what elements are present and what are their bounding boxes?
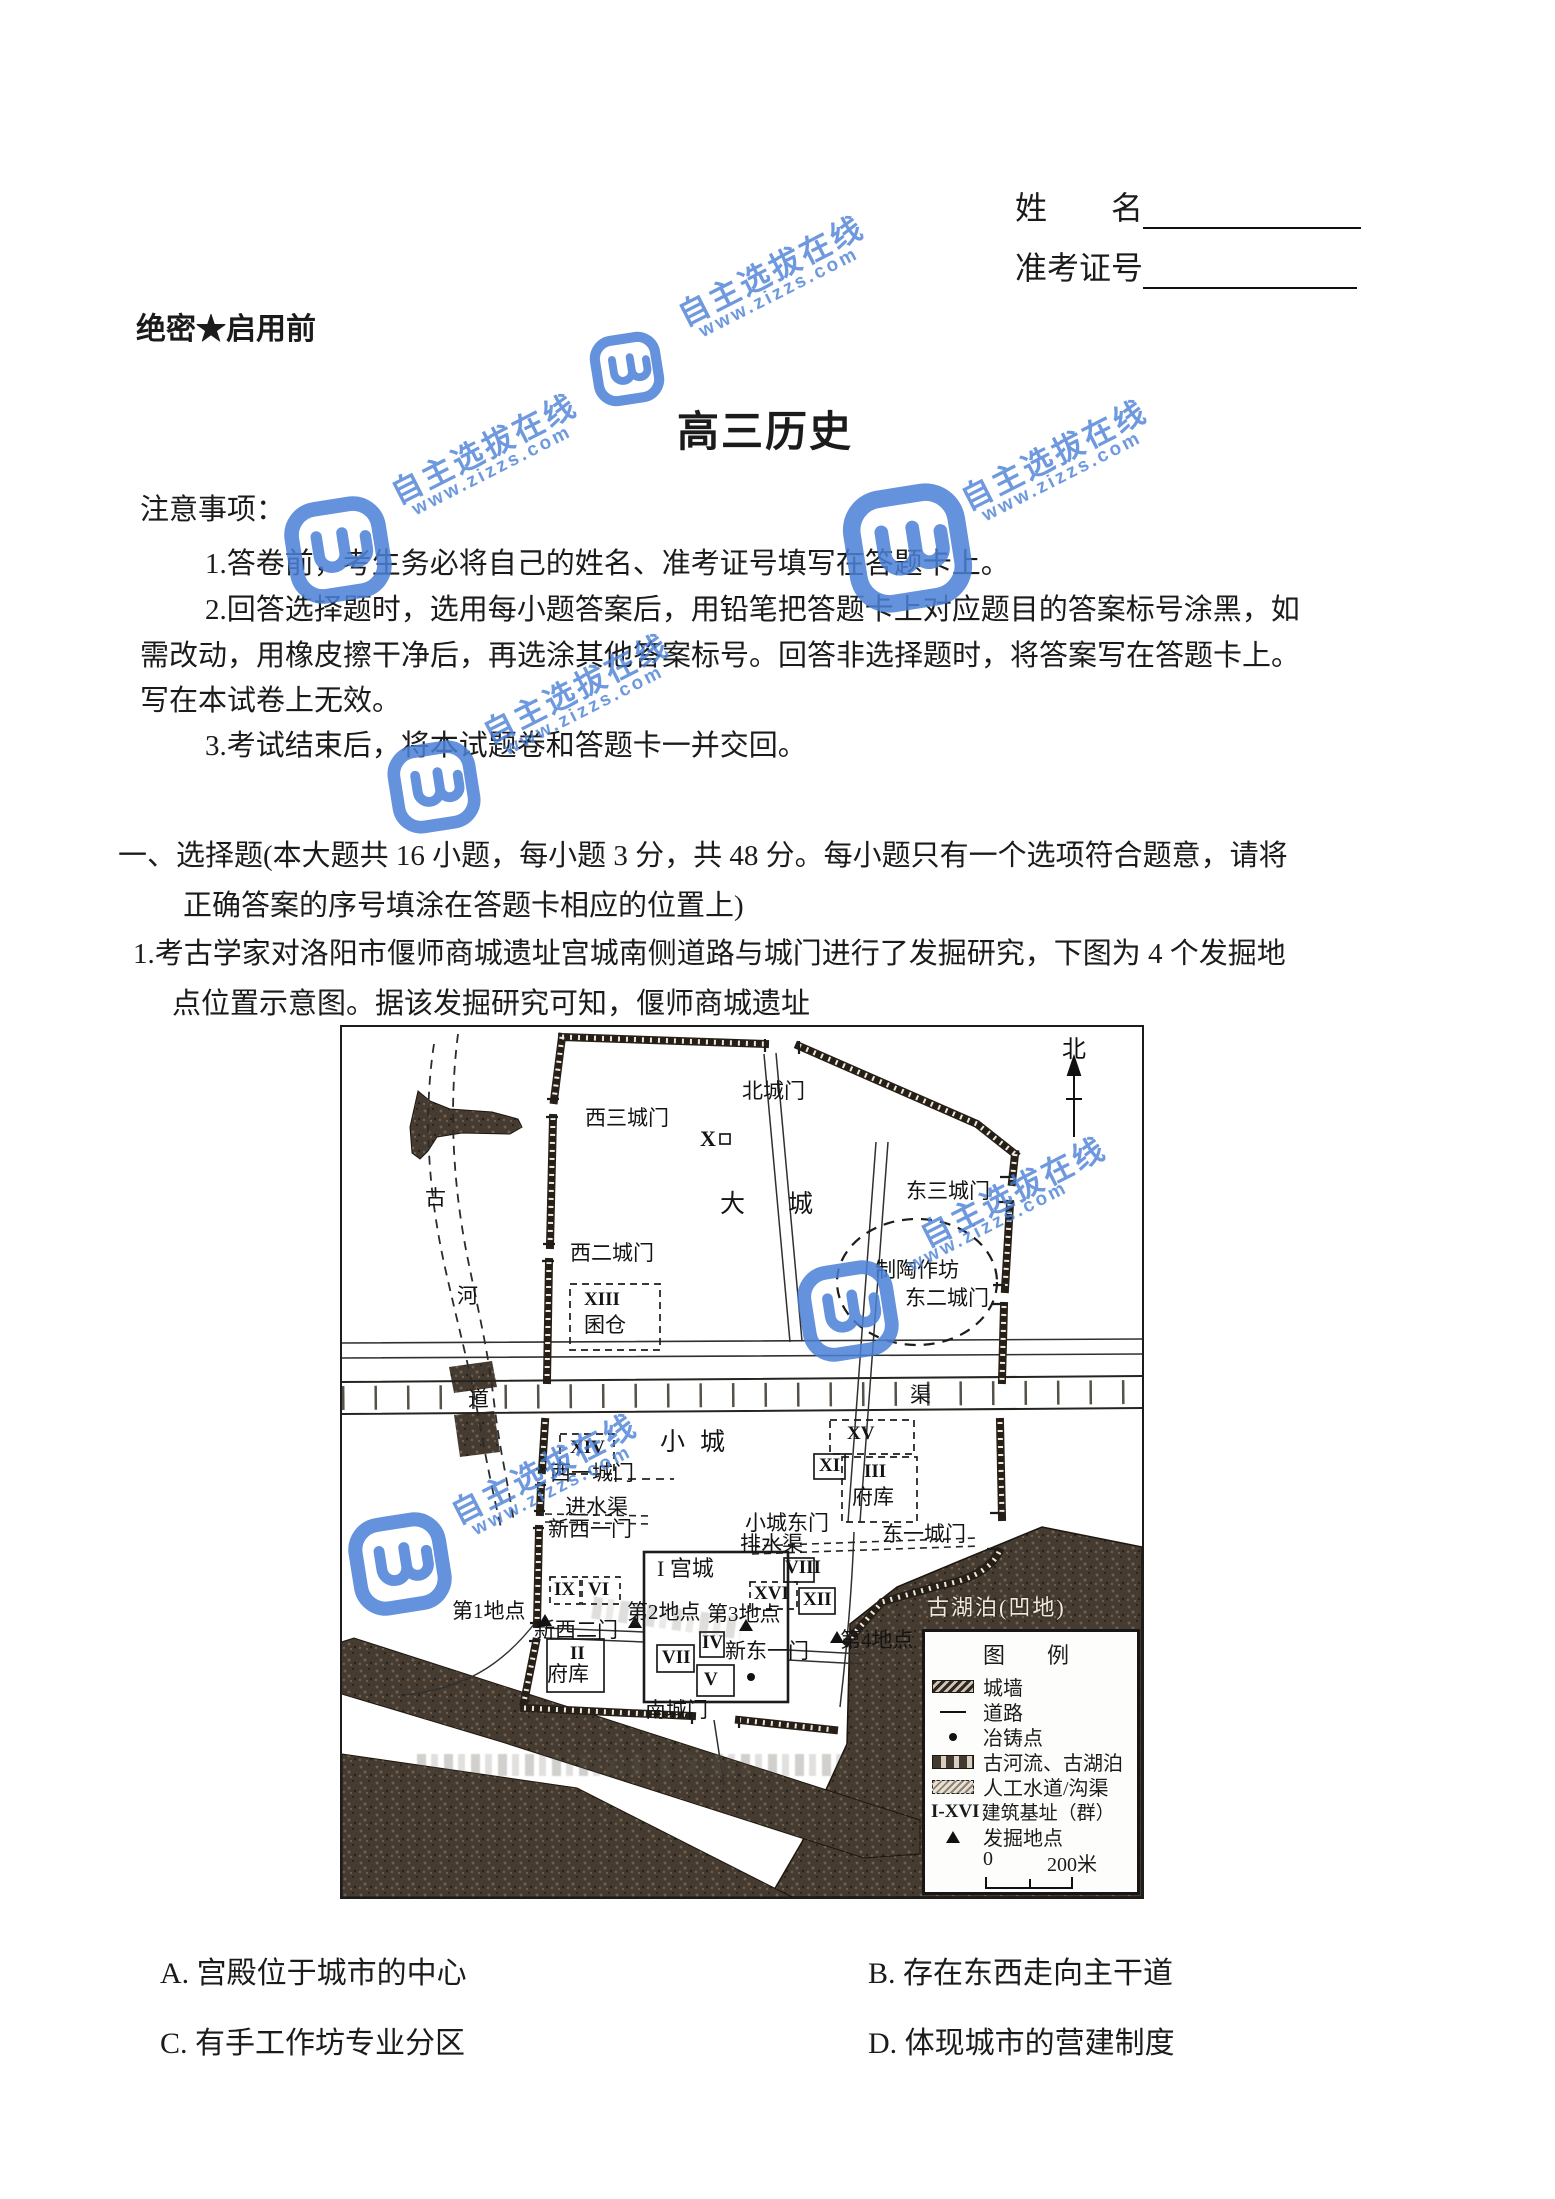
canal-lines	[342, 1376, 1142, 1414]
east-west-road	[342, 1339, 1142, 1358]
exam-paper-page: 姓 名 准考证号 绝密★启用前 高三历史 注意事项： 1.答卷前，考生务必将自己…	[0, 0, 1555, 2199]
label-water-inlet: 进水渠	[565, 1496, 628, 1518]
label-canal: 渠	[910, 1384, 931, 1406]
notes-heading: 注意事项：	[140, 486, 285, 528]
legend-title: 图 例	[931, 1638, 1131, 1670]
label-dacheng-a: 大	[720, 1192, 746, 1218]
showthrough-noise-strip-1	[417, 1754, 847, 1776]
name-blank-line	[1143, 197, 1361, 229]
legend-row-dig: 发掘地点	[931, 1824, 1131, 1849]
canal-swatch-icon	[931, 1780, 975, 1794]
exam-id-field-row: 准考证号	[1015, 243, 1357, 289]
legend-roman-range: I-XVI	[931, 1801, 980, 1823]
road-swatch-icon	[931, 1711, 975, 1713]
label-xiaocheng-a: 小	[660, 1430, 686, 1456]
label-iii: III	[864, 1462, 886, 1482]
label-gu: 古	[425, 1187, 446, 1209]
name-field-row: 姓 名	[1015, 183, 1361, 229]
legend-row-foundation: I-XVI 建筑基址（群）	[931, 1799, 1131, 1824]
option-c: C. 有手工作坊专业分区	[160, 2018, 465, 2062]
label-west-gate-2: 西二城门	[570, 1242, 654, 1264]
notes-item2-line3: 写在本试卷上无效。	[140, 677, 401, 719]
casting-point-dot	[747, 1673, 755, 1681]
label-small-city-east-gate: 小城东门	[745, 1512, 829, 1534]
legend-row-wall: 城墙	[931, 1674, 1131, 1699]
label-he: 河	[457, 1285, 478, 1307]
legend-row-cast: 冶铸点	[931, 1724, 1131, 1749]
channel-cross-blob-2	[454, 1411, 500, 1457]
zizzs-logo-icon	[343, 1506, 458, 1622]
label-xii: XII	[803, 1590, 832, 1610]
label-new-east-gate-1: 新东一门	[725, 1640, 809, 1662]
label-xv: XV	[847, 1424, 874, 1444]
label-vi: VI	[588, 1580, 609, 1600]
option-d: D. 体现城市的营建制度	[868, 2018, 1175, 2062]
dig-site-swatch-icon	[931, 1831, 975, 1843]
label-dao: 道	[468, 1388, 489, 1410]
archaeological-site-map: 北 北城门 西三城门 X 大 城 东三城门 制陶作坊 东二城门 西二城门 XII…	[340, 1025, 1144, 1899]
label-west-gate-3: 西三城门	[585, 1107, 669, 1129]
scale-bar	[985, 1877, 1073, 1889]
label-dacheng-b: 城	[788, 1192, 814, 1218]
river-hook-blob	[410, 1091, 522, 1159]
label-xvi: XVI	[754, 1584, 789, 1604]
label-ix: IX	[554, 1580, 575, 1600]
label-viii: VIII	[785, 1558, 821, 1578]
canal-ticks	[342, 1392, 1142, 1398]
secrecy-label: 绝密★启用前	[136, 304, 316, 348]
label-north-gate: 北城门	[742, 1080, 805, 1102]
legend-dig-label: 发掘地点	[983, 1822, 1063, 1851]
river-swatch-icon	[931, 1755, 975, 1769]
label-xiii: XIII	[584, 1290, 620, 1310]
option-a: A. 宫殿位于城市的中心	[160, 1948, 467, 1992]
zizzs-logo-icon	[791, 1255, 905, 1367]
label-dig-site-1: 第1地点	[452, 1600, 526, 1622]
legend-canal-label: 人工水道/沟渠	[983, 1772, 1109, 1801]
label-xiaocheng-b: 城	[700, 1430, 726, 1456]
label-treasury-east: 府库	[852, 1486, 894, 1508]
question1-line2: 点位置示意图。据该发掘研究可知，偃师商城遗址	[172, 980, 810, 1022]
label-new-west-gate-2: 新西二门	[534, 1619, 618, 1641]
exam-id-blank-line	[1143, 257, 1357, 289]
section-header-line1: 一、选择题(本大题共 16 小题，每小题 3 分，共 48 分。每小题只有一个选…	[118, 832, 1288, 874]
label-palace-city: I 宫城	[657, 1557, 714, 1580]
wall-swatch-icon	[931, 1680, 975, 1693]
zizzs-logo-icon	[586, 328, 668, 410]
label-iv: IV	[702, 1633, 723, 1653]
label-drainage: 排水渠	[740, 1533, 803, 1555]
label-granary: 囷仓	[584, 1314, 626, 1336]
option-b: B. 存在东西走向主干道	[868, 1948, 1173, 1992]
question1-line1: 1.考古学家对洛阳市偃师商城遗址宫城南侧道路与城门进行了发掘研究，下图为 4 个…	[133, 930, 1286, 972]
section-header-line2: 正确答案的序号填涂在答题卡相应的位置上)	[183, 882, 744, 924]
page-title: 高三历史	[0, 398, 1530, 459]
label-x: X	[700, 1127, 716, 1150]
scale-zero: 0	[983, 1848, 993, 1871]
label-ii: II	[570, 1644, 585, 1664]
label-vii: VII	[662, 1648, 691, 1668]
zizzs-logo-icon	[836, 474, 980, 622]
legend-row-canal: 人工水道/沟渠	[931, 1774, 1131, 1799]
name-label: 姓 名	[1015, 190, 1143, 226]
label-dig-site-4: 第4地点	[840, 1629, 914, 1651]
label-east-gate-1: 东一城门	[882, 1523, 966, 1545]
zizzs-logo-icon	[276, 490, 401, 610]
notes-item2-line2: 需改动，用橡皮擦干净后，再选涂其他答案标号。回答非选择题时，将答案写在答题卡上。	[140, 632, 1300, 674]
zizzs-logo-icon	[382, 735, 487, 838]
label-dig-site-2: 第2地点	[627, 1601, 701, 1623]
label-south-gate: 南城门	[645, 1699, 708, 1721]
label-ancient-lake: 古湖泊(凹地)	[927, 1596, 1066, 1619]
map-legend: 图 例 城墙 道路 冶铸点 古河流、古湖泊 人工水道/沟渠	[922, 1629, 1140, 1895]
label-new-west-gate-1: 新西一门	[548, 1518, 632, 1540]
legend-row-road: 道路	[931, 1699, 1131, 1724]
exam-id-label: 准考证号	[1015, 250, 1143, 286]
legend-row-river: 古河流、古湖泊	[931, 1749, 1131, 1774]
scale-end: 200米	[1047, 1848, 1097, 1877]
label-dig-site-3: 第3地点	[707, 1603, 781, 1625]
label-v: V	[704, 1670, 718, 1690]
legend-foundation-label: 建筑基址（群）	[982, 1798, 1115, 1825]
label-treasury-west: 府库	[547, 1663, 589, 1685]
label-xi: XI	[819, 1456, 840, 1476]
label-east-gate-2: 东二城门	[905, 1287, 989, 1309]
casting-point-swatch-icon	[931, 1733, 975, 1741]
